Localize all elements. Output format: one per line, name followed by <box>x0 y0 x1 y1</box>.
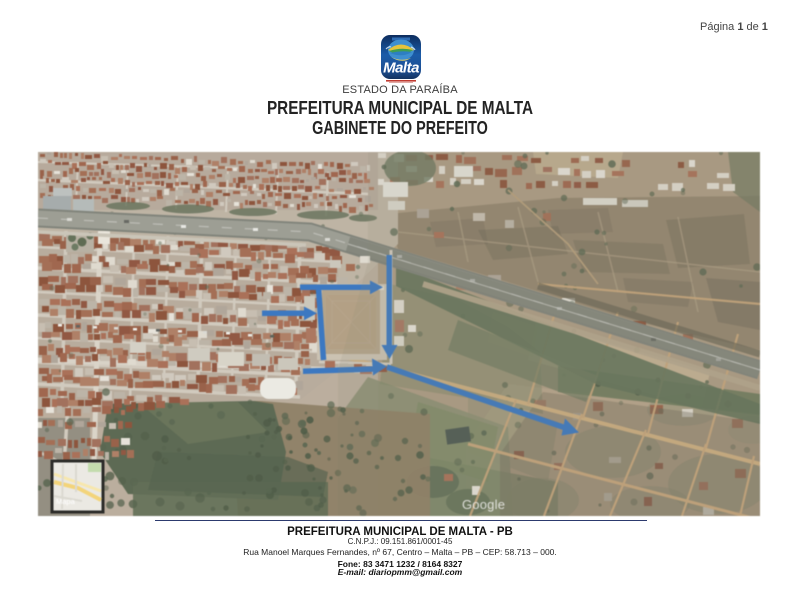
svg-text:Mapa: Mapa <box>56 497 76 506</box>
svg-text:Malta: Malta <box>383 60 419 77</box>
